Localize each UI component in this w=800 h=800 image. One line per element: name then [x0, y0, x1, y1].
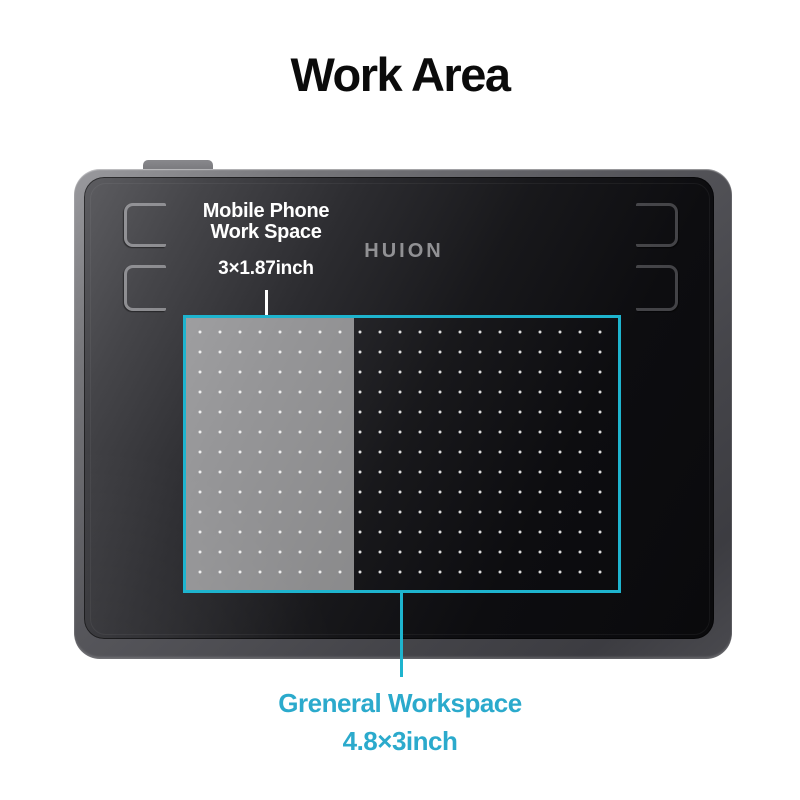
work-area-rectangle — [183, 315, 621, 593]
mobile-workspace-connector-line — [265, 290, 268, 316]
mobile-workspace-label-line1: Mobile Phone — [203, 200, 329, 222]
mobile-workspace-label: Mobile Phone Work Space — [160, 201, 372, 243]
mobile-workspace-dimensions: 3×1.87inch — [160, 258, 372, 280]
general-workspace-connector-line — [400, 592, 403, 677]
general-workspace-label: Greneral Workspace — [150, 688, 650, 718]
mobile-workspace-label-line2: Work Space — [210, 221, 321, 243]
express-key-outline-top-right-2 — [636, 265, 678, 311]
express-key-outline-top-right-1 — [636, 203, 678, 247]
product-infographic: Work Area HUION Mobile Phone Work Space … — [0, 0, 800, 800]
pen-tablet-dot-grid — [186, 318, 618, 590]
general-workspace-dimensions: 4.8×3inch — [150, 726, 650, 757]
page-title: Work Area — [0, 50, 800, 100]
